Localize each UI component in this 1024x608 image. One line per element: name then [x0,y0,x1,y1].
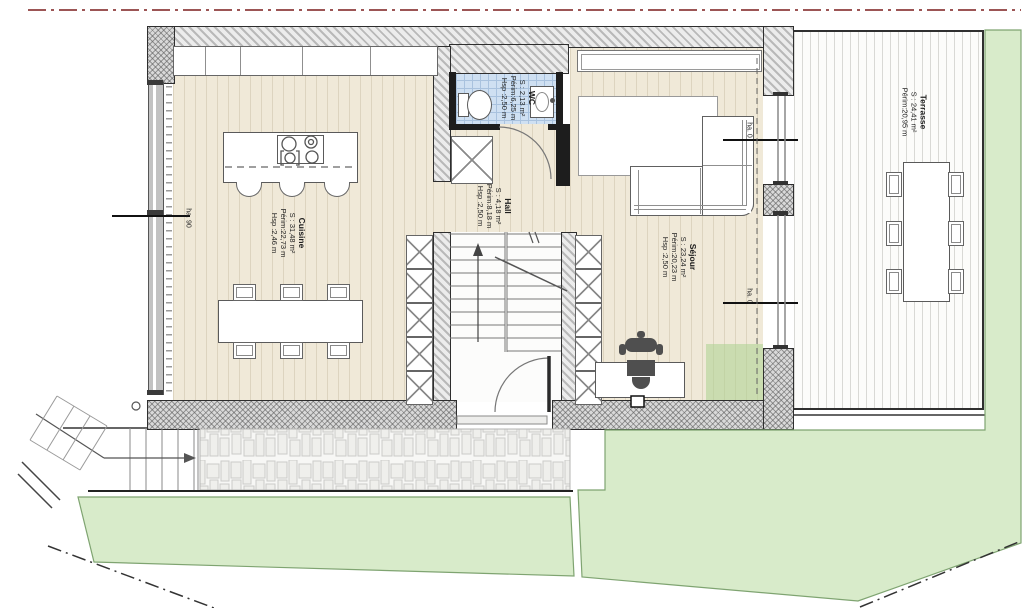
dim-label-right-upper: ha. 0 [746,122,753,138]
office-chair-back [625,338,657,352]
wall-above-wc [449,44,569,74]
sofa-divider [703,165,752,166]
wall-right-pillar [763,184,794,216]
sofa-divider [700,168,701,214]
dining-chair [280,284,303,301]
dining-chair [233,284,256,301]
room-label-terrasse: Terrasse S : 24,41 m² Périm:20,95 m [901,88,928,137]
stair-rack-left [406,269,433,303]
room-perimeter: Périm:22,73 m [279,209,288,258]
room-height: Hsp :2,50 m [661,233,670,282]
room-name: Cuisine [297,209,306,258]
office-chair-armrest [656,344,663,355]
dining-chair [233,342,256,359]
window-left-glass [153,82,156,395]
toilet-bowl [467,90,492,120]
room-perimeter: Périm:8,18 m [485,184,494,229]
wc-sink-tap [550,98,555,103]
wall-wc-right [556,72,563,124]
dining-chair [327,284,350,301]
kitchen-counter-divider [370,47,371,75]
stair-rack-right [575,303,602,337]
dining-chair [280,342,303,359]
terrace-edge-line [794,414,986,416]
dim-label-right-lower: ha. 0 [746,288,753,304]
sofa-cushion-line [742,120,743,206]
kitchen-counter [173,46,438,76]
room-height: Hsp :2,50 m [476,184,485,229]
room-area: S : 23,24 m² [679,233,688,282]
terrace-table [903,162,950,302]
hall-duct-shaft [451,136,493,184]
kitchen-counter-divider [205,47,206,75]
room-perimeter: Périm:20,23 m [670,233,679,282]
terrace-deck [794,30,984,410]
room-area: S : 2,13 m² [518,76,527,121]
insulation-ticks-left [166,86,172,396]
terrace-chair [948,269,964,294]
window-left-frame [148,82,164,395]
room-height: Hsp :2,46 m [270,209,279,258]
livingroom-lawn-overlay [706,344,763,400]
terrace-chair [886,172,902,197]
room-perimeter: Périm:20,95 m [901,88,910,137]
office-chair-knob [637,331,645,338]
room-name: Hall [503,184,512,229]
sideboard-inner [581,54,760,70]
stair-vestibule-floor [449,232,561,402]
wall-hall-livingroom [556,124,570,186]
room-label-wc: WC S : 2,13 m² Périm:6,25 m Hsp :2,50 m [500,76,536,121]
sofa-cushion-line [634,205,746,206]
window-left-node-mid [147,210,163,215]
room-height: Hsp :2,50 m [500,76,509,121]
room-area: S : 4,18 m² [494,184,503,229]
wall-wc-bottom-left [449,124,500,130]
terrace-chair [886,221,902,246]
stair-rack-left [406,337,433,371]
floor-plan-canvas: Cuisine S : 31,48 m² Périm:22,73 m Hsp :… [0,0,1024,608]
room-area: S : 31,48 m² [288,209,297,258]
terrace-chair [886,269,902,294]
room-name: Terrasse [919,88,928,137]
wall-right-lower [763,348,794,430]
window-left-node-bottom [147,390,163,395]
sofa-armrest-line [638,170,639,214]
room-label-hall: Hall S : 4,18 m² Périm:8,18 m Hsp :2,50 … [476,184,512,229]
office-chair-seat [627,360,655,376]
stair-rack-left [406,371,433,405]
wall-stair-left [433,232,451,424]
stair-rack-left [406,303,433,337]
stair-rack-right [575,269,602,303]
room-label-sejour: Séjour S : 23,24 m² Périm:20,23 m Hsp :2… [661,233,697,282]
kitchen-counter-divider [302,47,303,75]
room-label-cuisine: Cuisine S : 31,48 m² Périm:22,73 m Hsp :… [270,209,306,258]
sofa-junction [704,168,751,213]
room-area: S : 24,41 m² [910,88,919,137]
wall-corner-top-left [147,26,175,84]
sofa-cushion-line [634,209,746,210]
dining-table [218,300,363,343]
terrace-chair [948,221,964,246]
dim-label-left: ha. 90 [185,208,192,227]
office-chair-armrest [619,344,626,355]
room-perimeter: Périm:6,25 m [509,76,518,121]
kitchen-counter-divider [240,47,241,75]
stair-rack-left [406,235,433,269]
stair-rack-right [575,235,602,269]
room-name: Séjour [688,233,697,282]
dining-chair [327,342,350,359]
wall-corner-top-right [763,26,794,96]
window-left-node-top [147,80,163,85]
wc-sink-basin [535,92,549,112]
terrace-chair [948,172,964,197]
wall-wc-left [449,72,456,130]
cooktop [277,135,324,164]
room-name: WC [527,76,536,121]
rug [578,96,718,176]
